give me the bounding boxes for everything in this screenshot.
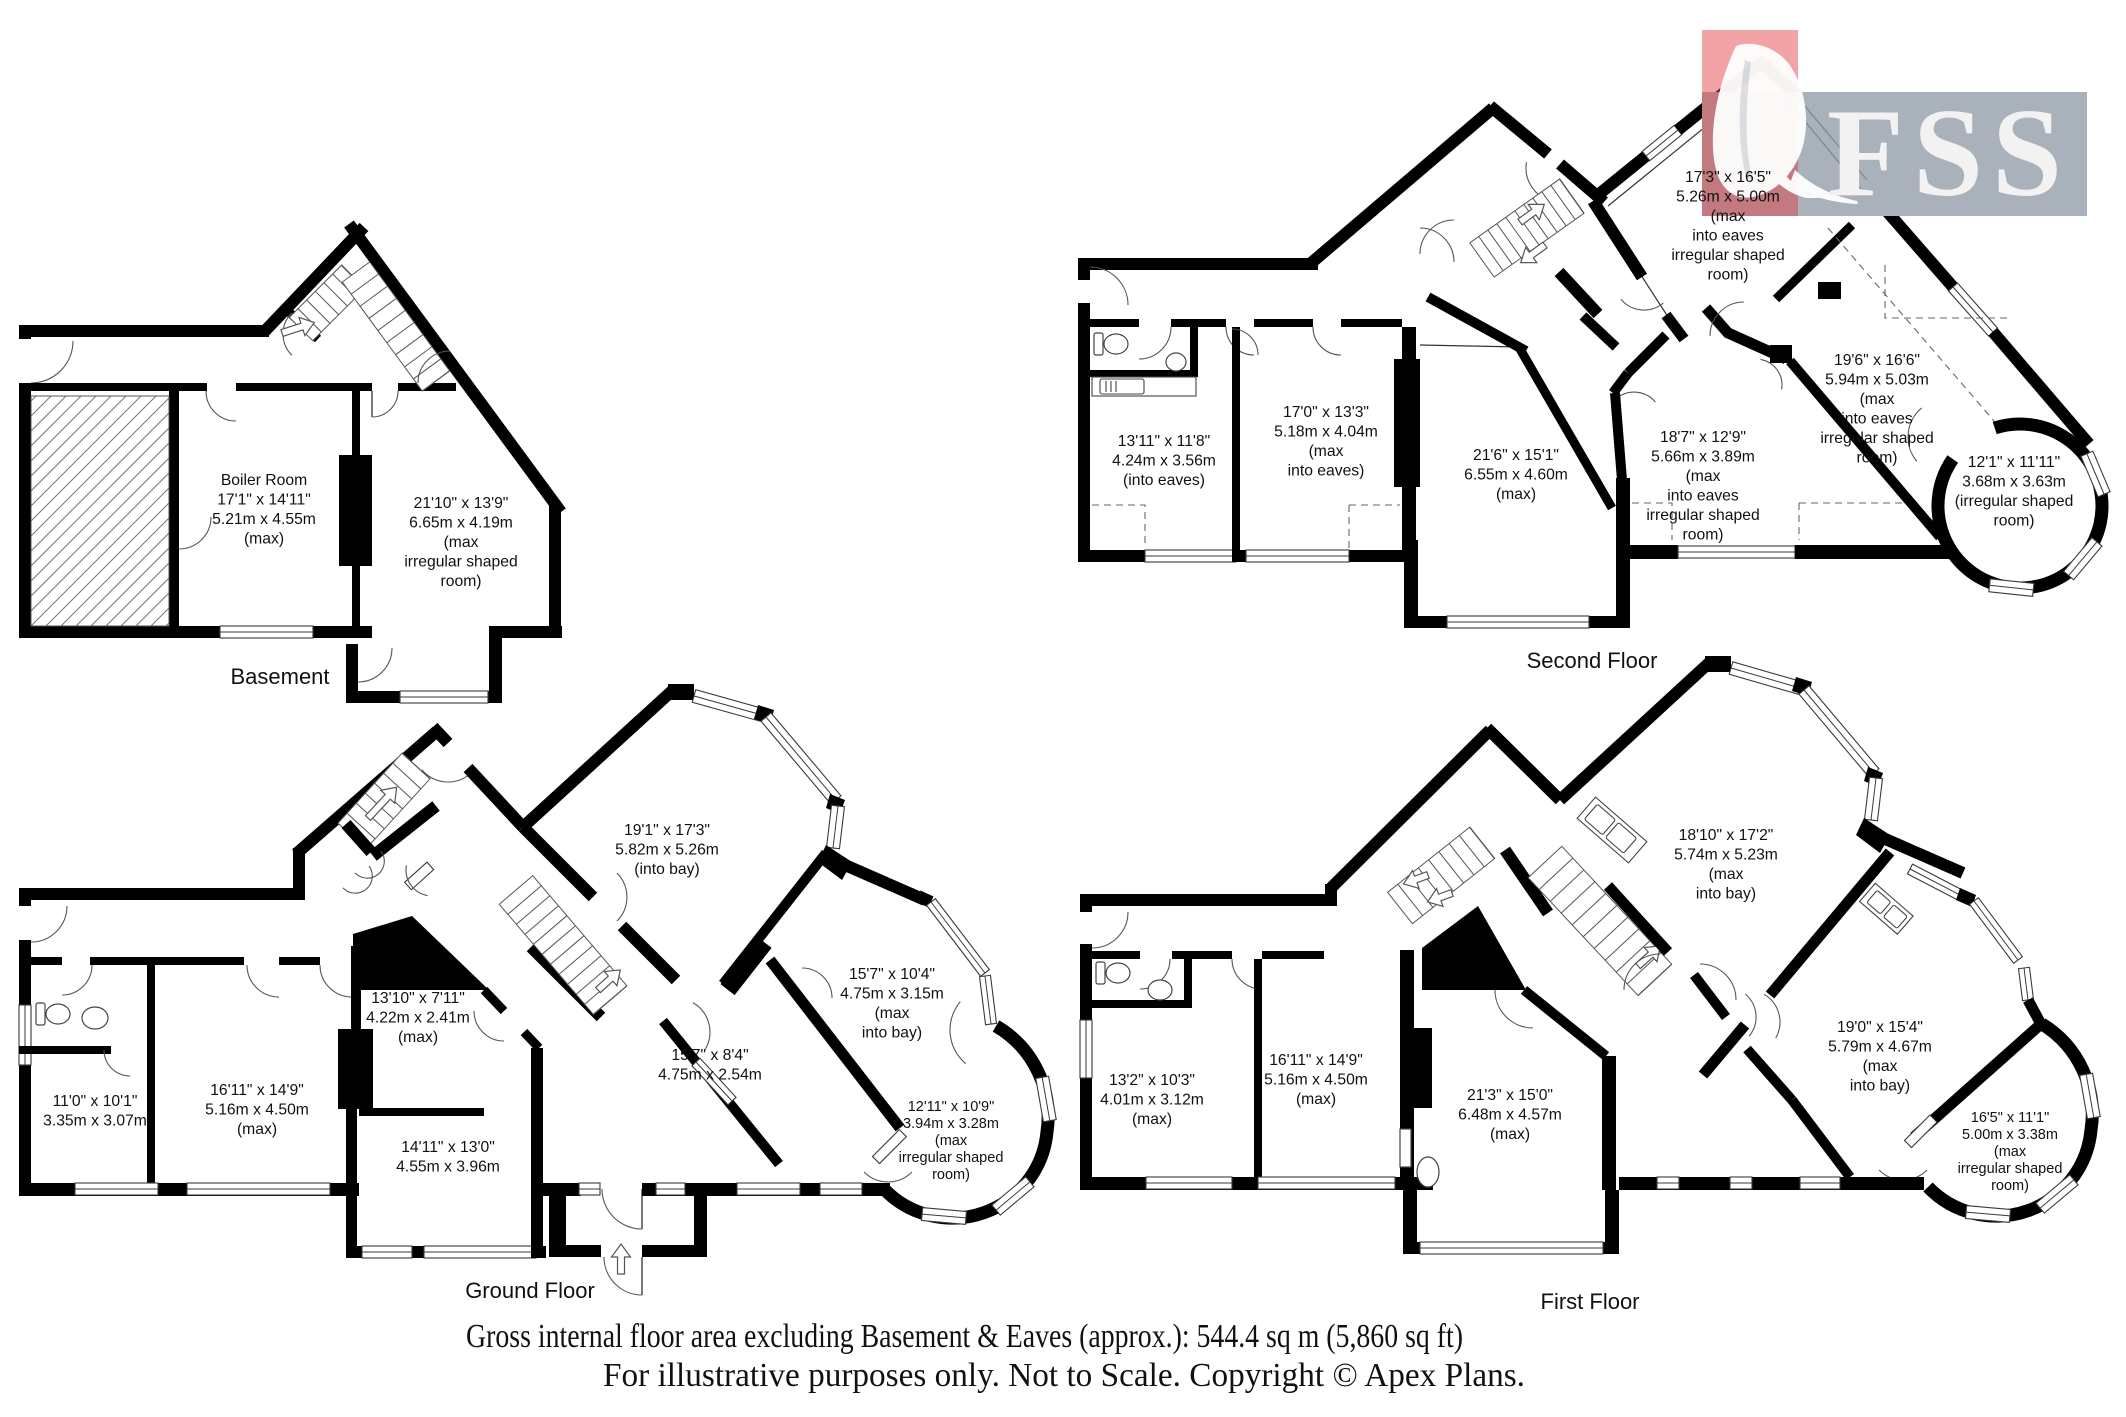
svg-text:13'11" x 11'8"4.24m x 3.56m(in: 13'11" x 11'8"4.24m x 3.56m(into eaves) xyxy=(1112,433,1216,489)
svg-text:Ground Floor: Ground Floor xyxy=(465,1278,595,1303)
svg-text:For illustrative purposes only: For illustrative purposes only. Not to S… xyxy=(603,1357,1525,1394)
svg-text:First Floor: First Floor xyxy=(1541,1289,1640,1314)
svg-text:Basement: Basement xyxy=(230,664,329,689)
svg-text:Second Floor: Second Floor xyxy=(1527,648,1658,673)
svg-text:FSS: FSS xyxy=(1827,84,2071,223)
svg-text:Gross internal floor area excl: Gross internal floor area excluding Base… xyxy=(466,1318,1463,1355)
